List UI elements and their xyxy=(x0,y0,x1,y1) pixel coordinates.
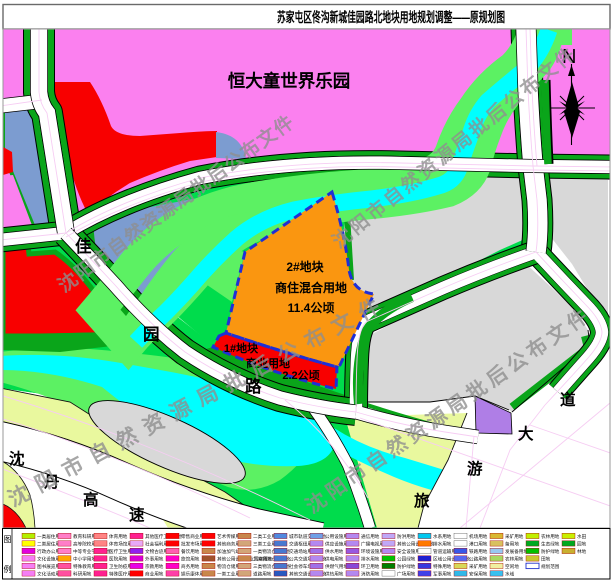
svg-text:道: 道 xyxy=(560,390,576,409)
svg-text:安保用地: 安保用地 xyxy=(469,570,488,577)
svg-text:恒大童世界乐园: 恒大童世界乐园 xyxy=(228,71,351,91)
svg-text:消防用地: 消防用地 xyxy=(361,570,380,577)
svg-text:大: 大 xyxy=(518,424,534,443)
svg-text:广场用地: 广场用地 xyxy=(397,570,416,577)
svg-text:生态绿地: 生态绿地 xyxy=(541,540,560,546)
svg-text:苏家屯区佟沟新城佳园路北地块用地规划调整——原规划图: 苏家屯区佟沟新城佳园路北地块用地规划调整——原规划图 xyxy=(277,9,505,25)
svg-text:供水用地: 供水用地 xyxy=(325,548,344,555)
svg-text:佳: 佳 xyxy=(75,236,92,256)
svg-text:外事用地: 外事用地 xyxy=(145,555,164,562)
svg-text:水田: 水田 xyxy=(577,533,587,540)
svg-text:11.4公顷: 11.4公顷 xyxy=(288,301,335,315)
svg-text:港口用地: 港口用地 xyxy=(469,540,488,547)
svg-text:例: 例 xyxy=(4,564,12,574)
svg-text:环卫用地: 环卫用地 xyxy=(361,563,380,570)
svg-text:道路用地: 道路用地 xyxy=(253,570,272,577)
svg-text:游: 游 xyxy=(467,459,483,478)
svg-text:供电用地: 供电用地 xyxy=(325,555,344,562)
svg-text:速: 速 xyxy=(129,506,145,524)
svg-text:水系用地: 水系用地 xyxy=(433,533,452,540)
svg-text:防洪用地: 防洪用地 xyxy=(397,533,416,540)
svg-text:旅: 旅 xyxy=(414,491,430,510)
svg-text:旅馆用地: 旅馆用地 xyxy=(181,555,200,562)
svg-text:水域: 水域 xyxy=(505,570,515,576)
svg-text:医院用地: 医院用地 xyxy=(109,555,128,562)
svg-text:供热用地: 供热用地 xyxy=(325,570,344,577)
svg-text:机场用地: 机场用地 xyxy=(469,533,488,540)
svg-text:农林用地: 农林用地 xyxy=(505,555,524,562)
svg-text:采矿用地: 采矿用地 xyxy=(469,563,488,570)
svg-text:供燃气用地: 供燃气用地 xyxy=(325,563,348,570)
svg-text:商住混合用地: 商住混合用地 xyxy=(275,280,347,295)
svg-text:宗教用地: 宗教用地 xyxy=(145,563,164,570)
svg-text:沈: 沈 xyxy=(9,449,25,468)
svg-text:2#地块: 2#地块 xyxy=(286,259,324,274)
svg-text:林地: 林地 xyxy=(577,548,587,555)
svg-text:园地: 园地 xyxy=(577,540,587,547)
svg-text:园: 园 xyxy=(143,325,160,344)
svg-text:规划范围: 规划范围 xyxy=(541,563,560,570)
svg-text:军事用地: 军事用地 xyxy=(433,570,452,577)
svg-text:科研用地: 科研用地 xyxy=(73,570,92,577)
svg-text:餐饮用地: 餐饮用地 xyxy=(181,548,200,555)
svg-text:农林用地: 农林用地 xyxy=(541,533,560,540)
svg-text:2.2公顷: 2.2公顷 xyxy=(282,369,319,382)
svg-text:排水用地: 排水用地 xyxy=(433,540,452,547)
svg-text:商业用地: 商业用地 xyxy=(145,570,164,577)
svg-text:铁路用地: 铁路用地 xyxy=(469,548,488,555)
svg-text:高: 高 xyxy=(83,490,99,509)
svg-text:空闲地: 空闲地 xyxy=(505,563,519,570)
svg-text:图: 图 xyxy=(4,535,12,544)
svg-text:商务用地: 商务用地 xyxy=(181,563,200,570)
svg-text:体育用地: 体育用地 xyxy=(109,533,128,540)
svg-text:备用地: 备用地 xyxy=(505,540,519,547)
svg-text:排水用地: 排水用地 xyxy=(361,555,380,562)
svg-text:防护绿地: 防护绿地 xyxy=(397,563,416,570)
svg-text:特殊用地: 特殊用地 xyxy=(433,563,452,570)
svg-text:发展备用地: 发展备用地 xyxy=(505,548,528,555)
svg-text:通信用地: 通信用地 xyxy=(361,533,380,540)
svg-text:1#地块: 1#地块 xyxy=(224,341,259,355)
svg-text:公园绿地: 公园绿地 xyxy=(397,555,416,562)
svg-text:田地: 田地 xyxy=(541,555,551,562)
svg-text:防护绿地: 防护绿地 xyxy=(541,548,560,555)
svg-text:中小学用地: 中小学用地 xyxy=(73,555,96,562)
svg-text:采矿用地: 采矿用地 xyxy=(505,533,524,540)
svg-text:公路用地: 公路用地 xyxy=(469,555,488,562)
